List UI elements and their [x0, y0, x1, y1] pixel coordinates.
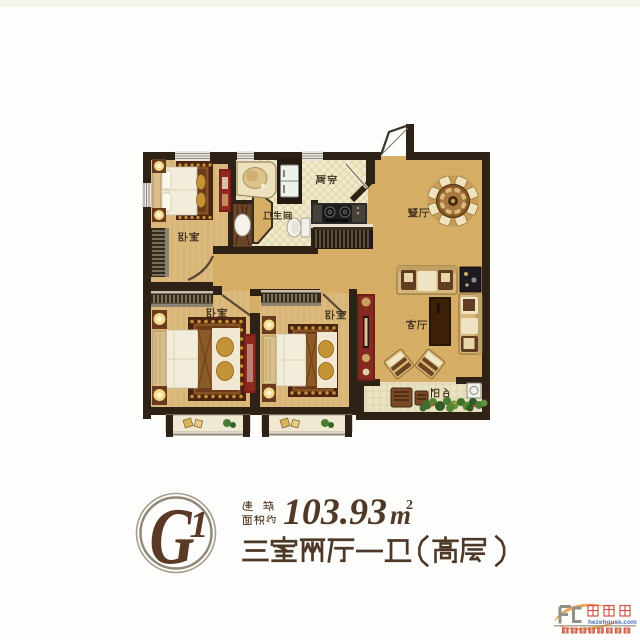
svg-text:1: 1 — [190, 504, 209, 546]
svg-text:hezehouse.com: hezehouse.com — [588, 619, 637, 626]
svg-text:G: G — [149, 492, 194, 581]
svg-text:2: 2 — [406, 498, 413, 513]
svg-text:103.93: 103.93 — [283, 492, 387, 533]
